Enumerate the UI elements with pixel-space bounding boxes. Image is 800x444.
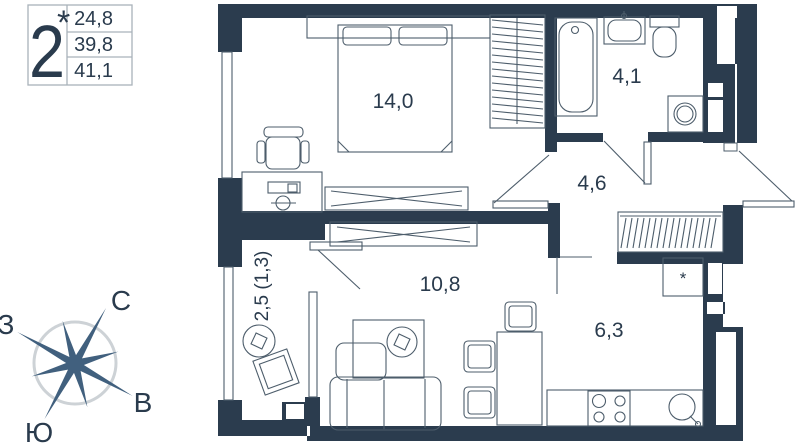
hanger-hatch-line xyxy=(693,218,698,248)
dining-chair-seat xyxy=(468,391,491,414)
legend-asterisk: * xyxy=(57,4,70,42)
hanger-hatch-line xyxy=(675,218,680,248)
burner xyxy=(594,412,604,422)
bedroom-area-label: 14,0 xyxy=(373,90,414,113)
bedroom-door-swing xyxy=(494,155,549,203)
living-area-label: 10,8 xyxy=(420,273,461,296)
hanger-hatch-line xyxy=(711,218,716,248)
balcony-glazing xyxy=(224,267,233,400)
fridge-mark: * xyxy=(680,269,687,288)
washing-machine-drum xyxy=(677,106,693,122)
compass-north-label: С xyxy=(111,285,131,316)
dining-chair-seat xyxy=(468,345,491,368)
kitchen-sink xyxy=(669,394,695,420)
living-furniture xyxy=(330,222,542,430)
kitchen-zone-boundary xyxy=(557,257,592,294)
coffee-table-decor xyxy=(394,334,410,350)
balcony-furniture xyxy=(243,325,299,395)
floor-plan-page: 2 * 24,8 39,8 41,1 С З В Ю xyxy=(0,0,800,444)
balcony-table xyxy=(243,325,275,357)
bedroom-furniture xyxy=(242,16,490,212)
hanger-hatch-line xyxy=(669,218,674,248)
area-legend: 2 * 24,8 39,8 41,1 xyxy=(28,4,132,93)
balcony-living-window xyxy=(309,292,317,397)
bedroom-closet xyxy=(490,15,545,128)
balcony-area-label: 2,5 (1,3) xyxy=(252,251,273,322)
hanger-hatch-line xyxy=(657,218,662,248)
compass-south-label: Ю xyxy=(25,417,53,444)
bathtub xyxy=(555,18,597,116)
chair-armrest-right xyxy=(301,141,309,163)
bathroom-area-label: 4,1 xyxy=(612,65,641,88)
pillow-left xyxy=(343,27,391,45)
pc-unit xyxy=(288,184,297,192)
entrance-door-leaf xyxy=(739,151,793,202)
bathtub-drain xyxy=(572,27,579,34)
hallway-closet xyxy=(618,212,723,252)
balcony-corner-niche xyxy=(286,404,304,419)
legend-living-area: 24,8 xyxy=(74,8,113,30)
coffee-table xyxy=(387,327,417,357)
kitchen-area-label: 6,3 xyxy=(594,319,623,342)
washing-machine xyxy=(668,96,703,132)
hanger-hatch-line xyxy=(681,218,686,248)
dining-chair-seat xyxy=(509,306,532,327)
compass-west-label: З xyxy=(0,309,14,340)
legend-total-area: 41,1 xyxy=(74,60,113,82)
hanger-hatch-line xyxy=(633,218,638,248)
hanger-hatch-line xyxy=(639,218,644,248)
chair-armrest-left xyxy=(257,141,265,163)
hanger-hatch-line xyxy=(627,218,632,248)
hanger-hatch-line xyxy=(699,218,704,248)
entrance-jamb xyxy=(724,143,737,151)
bathroom-door-leaf xyxy=(644,142,651,184)
compass-rose: С З В Ю xyxy=(0,285,152,444)
bedroom-door-leaf xyxy=(493,201,548,208)
bathroom-sink-basin xyxy=(608,20,641,41)
hallway-area-label: 4,6 xyxy=(577,172,606,195)
blanket-fold-left xyxy=(338,141,349,152)
bedroom-window xyxy=(222,52,232,178)
balcony-cup xyxy=(251,333,267,349)
hanger-hatch-line xyxy=(651,218,656,248)
legend-apartment-area: 39,8 xyxy=(74,34,113,56)
balcony-chair-frame xyxy=(253,349,299,395)
hanger-hatch-line xyxy=(621,218,626,248)
burner xyxy=(615,412,625,422)
hanger-hatch-line xyxy=(705,218,710,248)
sofa-chaise xyxy=(336,343,386,380)
balcony-door-swing xyxy=(318,250,360,289)
balcony-chair-seat xyxy=(259,355,292,388)
office-chair xyxy=(266,137,300,169)
bathroom-sink xyxy=(604,17,645,44)
burner xyxy=(593,395,606,408)
desk xyxy=(242,172,322,212)
dining-table xyxy=(497,332,542,425)
kitchen-faucet xyxy=(690,416,698,424)
blanket-fold-right xyxy=(441,141,452,152)
bathtub-inner xyxy=(559,22,593,112)
hanger-hatch-line xyxy=(645,218,650,248)
floor-plan: 14,0 4,1 4,6 10,8 6,3 2,5 (1,3) * xyxy=(218,4,794,441)
chair-headrest xyxy=(264,127,303,137)
entrance-threshold xyxy=(743,201,794,207)
hallway-closet-hatch xyxy=(621,218,716,248)
inner-walls xyxy=(240,18,723,426)
bed xyxy=(338,25,452,152)
hanger-hatch-line xyxy=(663,218,668,248)
floor-plan-canvas: 2 * 24,8 39,8 41,1 С З В Ю xyxy=(0,0,800,444)
burner xyxy=(615,396,625,406)
kitchen-counter xyxy=(547,390,703,426)
hanger-hatch-line xyxy=(687,218,692,248)
bathroom-door-swing xyxy=(604,141,645,183)
balcony-chair xyxy=(253,349,299,395)
pillow-right xyxy=(399,27,447,45)
toilet-bowl xyxy=(653,27,676,57)
compass-east-label: В xyxy=(134,387,153,418)
